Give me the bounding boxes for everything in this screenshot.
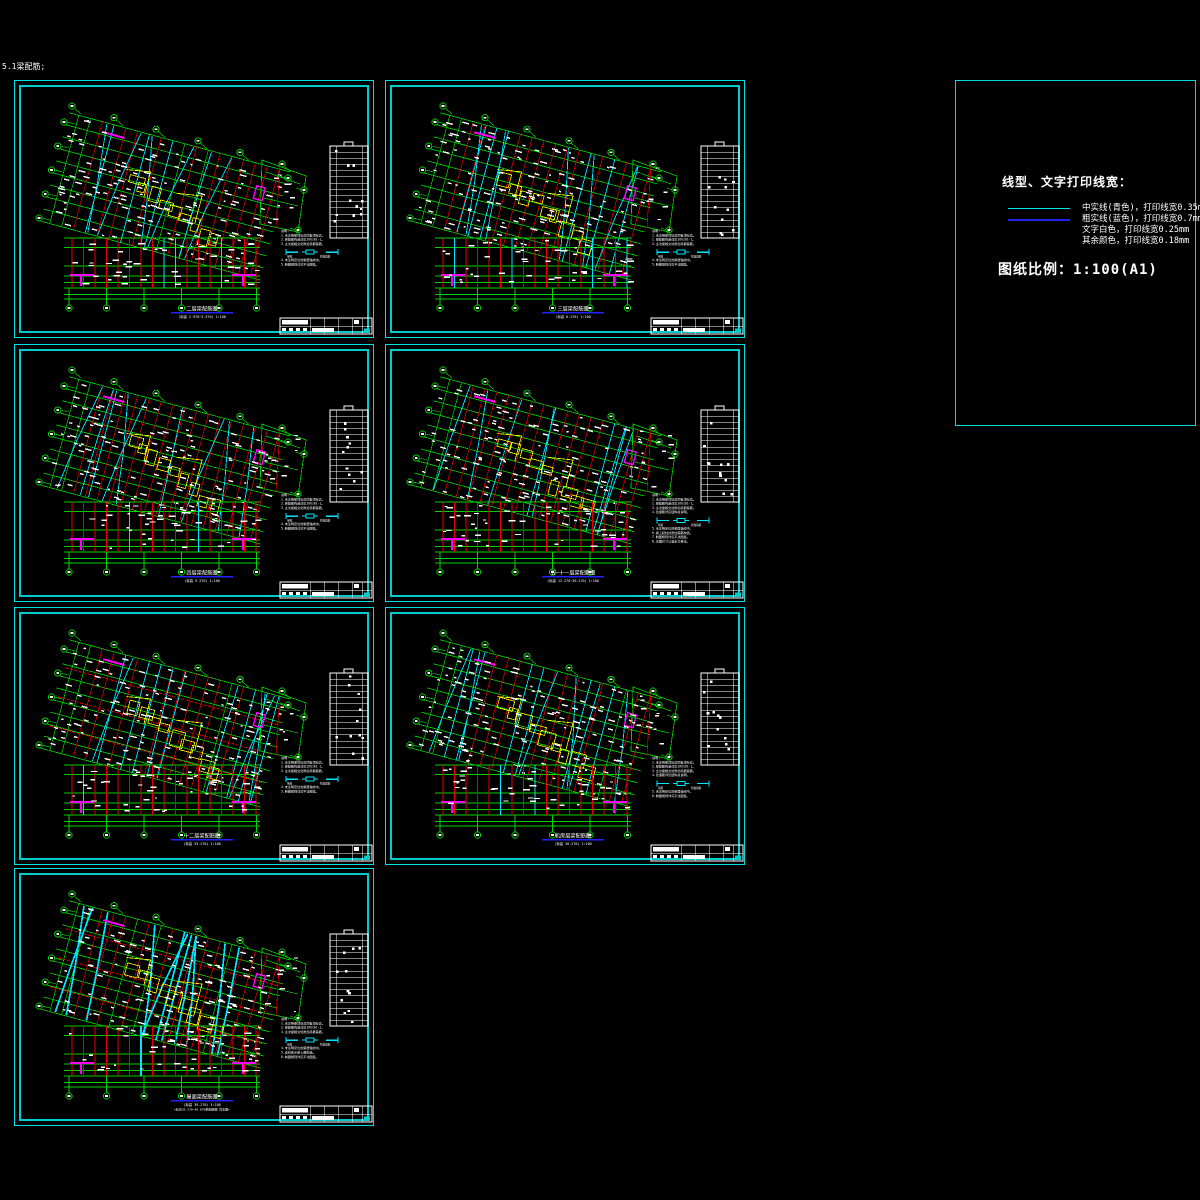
drawing-frame-5[interactable]: 说明:1.未注明梁顶标高同板顶标高。2.梁配筋构造详见16G101-1。3.主次…: [14, 607, 374, 865]
drawing-frame-4[interactable]: 说明:1.未注明梁顶标高同板顶标高。2.梁配筋构造详见16G101-1。3.主次…: [385, 344, 745, 602]
svg-text:3.主次梁相交处附加吊筋箍筋。: 3.主次梁相交处附加吊筋箍筋。: [281, 768, 325, 773]
svg-text:3.主次梁相交处附加吊筋箍筋。: 3.主次梁相交处附加吊筋箍筋。: [652, 505, 696, 510]
legend-scale-label: 图纸比例：1:100(A1): [998, 259, 1158, 279]
svg-text:8.本图尺寸以毫米为单位。: 8.本图尺寸以毫米为单位。: [652, 538, 690, 543]
svg-text:3.主次梁相交处附加吊筋箍筋。: 3.主次梁相交处附加吊筋箍筋。: [281, 505, 325, 510]
drawing-frame-7[interactable]: 说明:1.未注明梁顶标高同板顶标高。2.梁配筋构造详见16G101-1。3.主次…: [14, 868, 374, 1126]
legend-item-label: 粗实线(蓝色)，打印线宽0.7mm: [1082, 215, 1200, 224]
svg-text:6.制图规则详见平法图集。: 6.制图规则详见平法图集。: [652, 793, 690, 798]
svg-text:1.未注明梁顶标高同板顶标高。: 1.未注明梁顶标高同板顶标高。: [281, 232, 325, 237]
svg-text:2.梁配筋构造详见16G101-1。: 2.梁配筋构造详见16G101-1。: [652, 764, 695, 769]
svg-text:4.未注明定位的梁居轴线中。: 4.未注明定位的梁居轴线中。: [281, 784, 322, 789]
cad-canvas: 5.1梁配筋; 说明:1.未注明梁顶标高同板顶标高。2.梁配筋构造详见16G10…: [0, 0, 1200, 1200]
svg-text:(标高 12.270~30.270) 1:100: (标高 12.270~30.270) 1:100: [547, 578, 599, 583]
svg-text:1.未注明梁顶标高同板顶标高。: 1.未注明梁顶标高同板顶标高。: [281, 496, 325, 501]
plot-legend-panel: 线型、文字打印线宽： 中实线(青色)，打印线宽0.35mm 粗实线(蓝色)，打印…: [955, 80, 1196, 426]
svg-text:(标高 33.270) 1:100: (标高 33.270) 1:100: [183, 841, 220, 846]
plan-drawing-sheet-3: 说明:1.未注明梁顶标高同板顶标高。2.梁配筋构造详见16G101-1。3.主次…: [14, 344, 374, 602]
plan-drawing-sheet-4: 说明:1.未注明梁顶标高同板顶标高。2.梁配筋构造详见16G101-1。3.主次…: [385, 344, 745, 602]
svg-text:说明:: 说明:: [652, 755, 660, 760]
plan-drawing-sheet-2: 说明:1.未注明梁顶标高同板顶标高。2.梁配筋构造详见16G101-1。3.主次…: [385, 80, 745, 338]
svg-text:二层梁配筋图: 二层梁配筋图: [186, 305, 217, 313]
svg-text:5.虚线表示梁上翻构造。: 5.虚线表示梁上翻构造。: [281, 1050, 316, 1055]
legend-item-label: 其余颜色，打印线宽0.18mm: [1082, 237, 1189, 246]
svg-text:1.未注明梁顶标高同板顶标高。: 1.未注明梁顶标高同板顶标高。: [652, 759, 696, 764]
svg-text:3.主次梁相交处附加吊筋箍筋。: 3.主次梁相交处附加吊筋箍筋。: [652, 241, 696, 246]
drawing-frame-6[interactable]: 说明:1.未注明梁顶标高同板顶标高。2.梁配筋构造详见16G101-1。3.主次…: [385, 607, 745, 865]
svg-text:4.未注明定位的梁居轴线中。: 4.未注明定位的梁居轴线中。: [652, 257, 693, 262]
svg-text:7.制图规则详见平法图集。: 7.制图规则详见平法图集。: [652, 534, 690, 539]
svg-text:(标高 36.270) 1:100: (标高 36.270) 1:100: [554, 841, 591, 846]
svg-text:6.梁上起柱处附加箍筋构造。: 6.梁上起柱处附加箍筋构造。: [652, 530, 693, 535]
svg-text:1.未注明梁顶标高同板顶标高。: 1.未注明梁顶标高同板顶标高。: [281, 1020, 325, 1025]
svg-text:3.主次梁相交处附加吊筋箍筋。: 3.主次梁相交处附加吊筋箍筋。: [281, 1029, 325, 1034]
corner-label: 5.1梁配筋;: [2, 63, 45, 71]
svg-text:2.梁配筋构造详见16G101-1。: 2.梁配筋构造详见16G101-1。: [281, 1025, 324, 1030]
drawing-frame-1[interactable]: 说明:1.未注明梁顶标高同板顶标高。2.梁配筋构造详见16G101-1。3.主次…: [14, 80, 374, 338]
legend-item-label: 中实线(青色)，打印线宽0.35mm: [1082, 204, 1200, 213]
plan-drawing-sheet-5: 说明:1.未注明梁顶标高同板顶标高。2.梁配筋构造详见16G101-1。3.主次…: [14, 607, 374, 865]
svg-text:三层梁配筋图: 三层梁配筋图: [557, 305, 588, 313]
svg-text:4.未注明定位的梁居轴线中。: 4.未注明定位的梁居轴线中。: [281, 1045, 322, 1050]
legend-title: 线型、文字打印线宽：: [1002, 173, 1132, 190]
svg-text:说明:: 说明:: [281, 492, 289, 497]
drawing-frame-3[interactable]: 说明:1.未注明梁顶标高同板顶标高。2.梁配筋构造详见16G101-1。3.主次…: [14, 344, 374, 602]
svg-text:3.主次梁相交处附加吊筋箍筋。: 3.主次梁相交处附加吊筋箍筋。: [652, 768, 696, 773]
svg-text:2.梁配筋构造详见16G101-1。: 2.梁配筋构造详见16G101-1。: [281, 764, 324, 769]
svg-text:5.制图规则详见平法图集。: 5.制图规则详见平法图集。: [281, 789, 319, 794]
svg-text:机房层梁配筋图: 机房层梁配筋图: [555, 832, 591, 840]
svg-text:说明:: 说明:: [281, 755, 289, 760]
svg-text:(标高 6.270) 1:100: (标高 6.270) 1:100: [555, 314, 590, 319]
svg-text:十二层梁配筋图: 十二层梁配筋图: [184, 832, 220, 840]
svg-text:5.制图规则详见平法图集。: 5.制图规则详见平法图集。: [281, 526, 319, 531]
svg-text:说明:: 说明:: [281, 228, 289, 233]
legend-item-label: 文字白色，打印线宽0.25mm: [1082, 226, 1189, 235]
svg-text:5.未注明定位的梁居轴线中。: 5.未注明定位的梁居轴线中。: [652, 789, 693, 794]
svg-text:1.未注明梁顶标高同板顶标高。: 1.未注明梁顶标高同板顶标高。: [281, 759, 325, 764]
svg-text:4.未注明定位的梁居轴线中。: 4.未注明定位的梁居轴线中。: [281, 257, 322, 262]
svg-text:(标高 39.270) 1:100: (标高 39.270) 1:100: [183, 1102, 220, 1107]
svg-text:4.拉通筋详见结构总说明。: 4.拉通筋详见结构总说明。: [652, 772, 690, 777]
svg-text:四层梁配筋图: 四层梁配筋图: [186, 569, 217, 577]
legend-swatch-cyan-line: [1008, 208, 1070, 209]
svg-text:屋面梁配筋图: 屋面梁配筋图: [186, 1093, 217, 1101]
svg-text:2.梁配筋构造详见16G101-1。: 2.梁配筋构造详见16G101-1。: [652, 237, 695, 242]
svg-text:3.主次梁相交处附加吊筋箍筋。: 3.主次梁相交处附加吊筋箍筋。: [281, 241, 325, 246]
svg-text:4.未注明定位的梁居轴线中。: 4.未注明定位的梁居轴线中。: [281, 521, 322, 526]
svg-text:1.未注明梁顶标高同板顶标高。: 1.未注明梁顶标高同板顶标高。: [652, 496, 696, 501]
svg-text:(标高 9.270) 1:100: (标高 9.270) 1:100: [184, 578, 219, 583]
svg-text:说明:: 说明:: [652, 228, 660, 233]
drawing-frame-2[interactable]: 说明:1.未注明梁顶标高同板顶标高。2.梁配筋构造详见16G101-1。3.主次…: [385, 80, 745, 338]
svg-text:说明:: 说明:: [652, 492, 660, 497]
svg-text:2.梁配筋构造详见16G101-1。: 2.梁配筋构造详见16G101-1。: [281, 501, 324, 506]
svg-text:说明:: 说明:: [281, 1016, 289, 1021]
svg-text:2.梁配筋构造详见16G101-1。: 2.梁配筋构造详见16G101-1。: [281, 237, 324, 242]
svg-text:5.未注明定位的梁居轴线中。: 5.未注明定位的梁居轴线中。: [652, 526, 693, 531]
svg-text:五~十一层梁配筋图: 五~十一层梁配筋图: [551, 569, 596, 577]
svg-text:(标高 2.970~3.570) 1:100: (标高 2.970~3.570) 1:100: [178, 314, 226, 319]
plan-drawing-sheet-1: 说明:1.未注明梁顶标高同板顶标高。2.梁配筋构造详见16G101-1。3.主次…: [14, 80, 374, 338]
svg-text:4.拉通筋详见结构总说明。: 4.拉通筋详见结构总说明。: [652, 509, 690, 514]
legend-swatch-blue-line: [1008, 219, 1070, 221]
svg-text:5.制图规则详见平法图集。: 5.制图规则详见平法图集。: [652, 262, 690, 267]
svg-text:1.未注明梁顶标高同板顶标高。: 1.未注明梁顶标高同板顶标高。: [652, 232, 696, 237]
svg-text:6.制图规则详见平法图集。: 6.制图规则详见平法图集。: [281, 1054, 319, 1059]
plan-drawing-sheet-7: 说明:1.未注明梁顶标高同板顶标高。2.梁配筋构造详见16G101-1。3.主次…: [14, 868, 374, 1126]
svg-text:2.梁配筋构造详见16G101-1。: 2.梁配筋构造详见16G101-1。: [652, 501, 695, 506]
plan-drawing-sheet-6: 说明:1.未注明梁顶标高同板顶标高。2.梁配筋构造详见16G101-1。3.主次…: [385, 607, 745, 865]
svg-text:5.制图规则详见平法图集。: 5.制图规则详见平法图集。: [281, 262, 319, 267]
svg-text:<标高39.270~40.870梁配筋图 同本图>: <标高39.270~40.870梁配筋图 同本图>: [174, 1107, 230, 1112]
